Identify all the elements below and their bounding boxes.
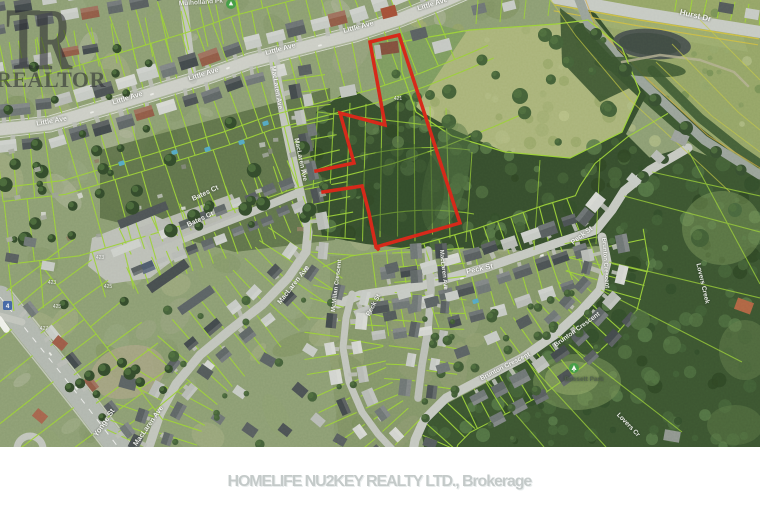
svg-text:REALTOR: REALTOR [0,67,106,92]
svg-text:HOMELIFE NU2KEY REALTY LTD., B: HOMELIFE NU2KEY REALTY LTD., Brokerage [228,473,533,490]
